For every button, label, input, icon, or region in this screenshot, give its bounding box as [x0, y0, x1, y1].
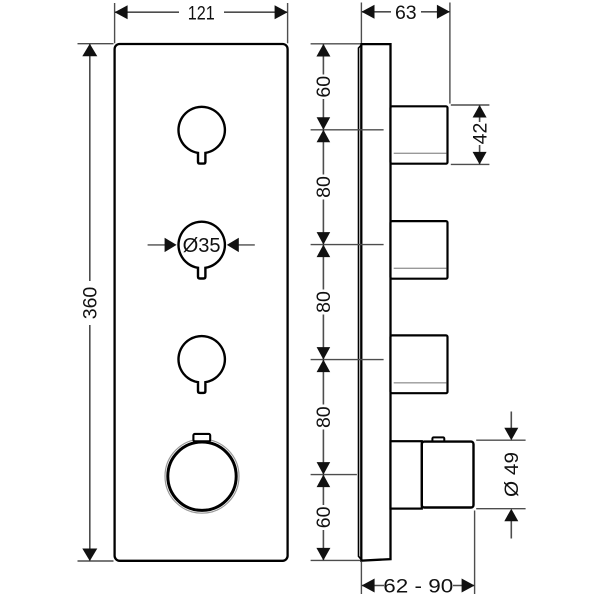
svg-text:121: 121	[188, 2, 215, 24]
svg-text:62 - 90: 62 - 90	[383, 576, 453, 598]
svg-text:80: 80	[313, 291, 335, 313]
svg-text:42: 42	[469, 123, 491, 145]
svg-text:80: 80	[313, 176, 335, 198]
svg-text:Ø 49: Ø 49	[501, 452, 523, 497]
svg-text:63: 63	[395, 2, 417, 24]
svg-text:Ø35: Ø35	[183, 235, 221, 257]
svg-text:60: 60	[313, 506, 335, 528]
svg-text:360: 360	[80, 287, 102, 320]
svg-text:80: 80	[313, 406, 335, 428]
svg-text:60: 60	[313, 76, 335, 98]
